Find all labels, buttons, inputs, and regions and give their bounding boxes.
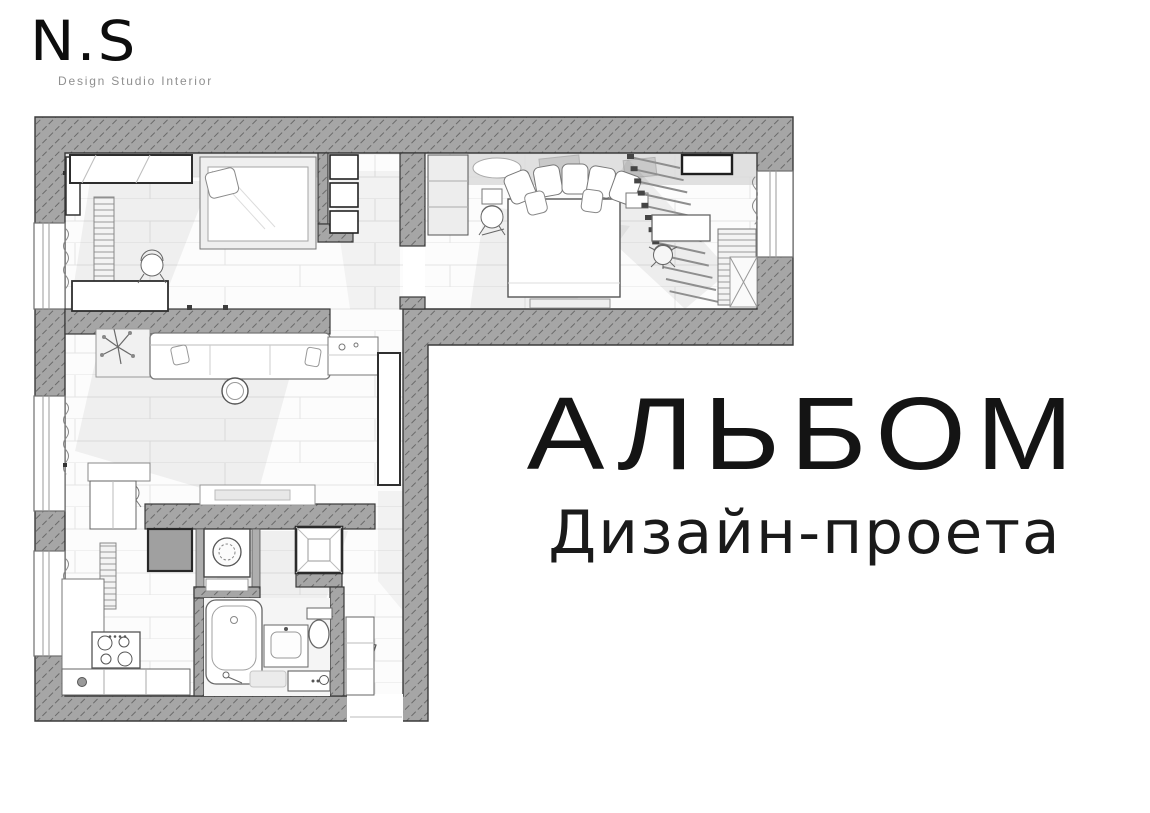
window-left-2 [34,396,69,511]
coffee-table [222,378,248,404]
desk [72,281,168,311]
sofa [150,333,330,379]
album-title: АЛЬБОМ [415,382,1150,485]
radiator [94,197,114,287]
entry-console [346,617,374,695]
title-block: АЛЬБОМ Дизайн-проета [460,382,1150,563]
bath-mat [250,671,286,687]
media-console [328,337,378,375]
cabinet-column [90,481,136,529]
wardrobe [70,155,192,183]
sink-vanity [264,625,308,667]
storage-niche [330,155,358,233]
dark-unit [148,529,192,571]
vent-shaft [296,527,342,573]
cooktop [92,632,140,668]
base-cabinets [62,669,190,695]
window-frame-rack [730,257,757,307]
peninsula-backsplash [200,485,315,505]
bathroom [204,598,332,696]
logo-mark: N.S [30,14,228,69]
tv-panel [378,353,400,485]
cover-page: { "page": { "background_color": "#ffffff… [0,0,1150,813]
entry-wardrobe [428,155,468,235]
bed-bench [530,299,610,308]
hallway [346,617,374,695]
album-subtitle: Дизайн-проета [453,503,1150,563]
wall-table [88,463,150,481]
nightstand [482,189,502,204]
studio-logo: N.S Design Studio Interior [30,14,213,88]
wall-shelf [682,155,732,174]
window-left-1 [34,223,69,309]
washing-machine [204,529,250,591]
window-right [753,171,794,257]
kids-bed [200,157,316,249]
desk [652,215,710,241]
bath-bench [288,671,330,691]
logo-tagline: Design Studio Interior [58,74,213,88]
